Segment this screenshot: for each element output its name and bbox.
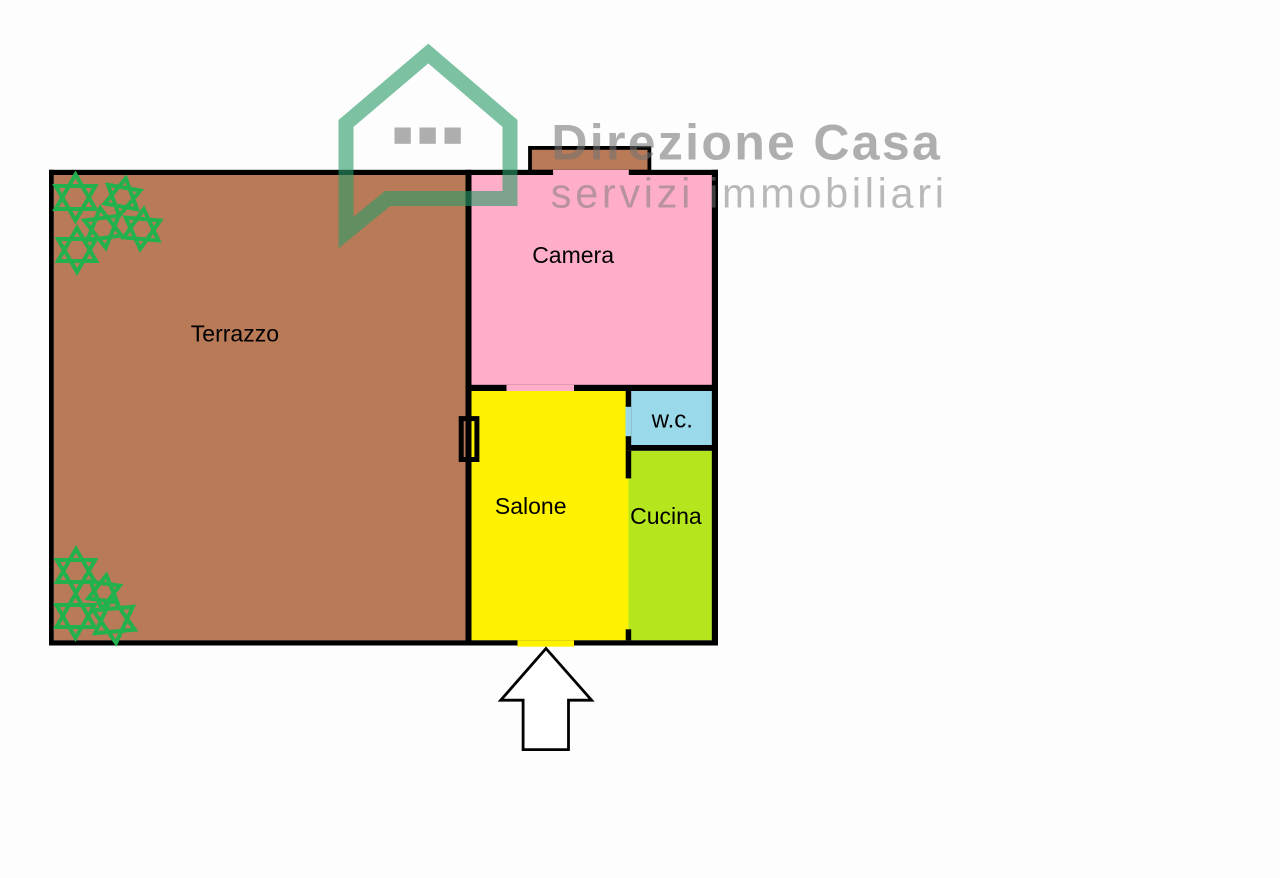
svg-text:Salone: Salone bbox=[495, 493, 567, 519]
svg-text:Terrazzo: Terrazzo bbox=[191, 320, 279, 346]
svg-text:Direzione Casa: Direzione Casa bbox=[551, 114, 942, 170]
svg-text:servizi immobiliari: servizi immobiliari bbox=[551, 170, 948, 217]
svg-text:Camera: Camera bbox=[532, 242, 614, 268]
svg-text:w.c.: w.c. bbox=[651, 406, 693, 433]
svg-text:Cucina: Cucina bbox=[630, 503, 702, 529]
